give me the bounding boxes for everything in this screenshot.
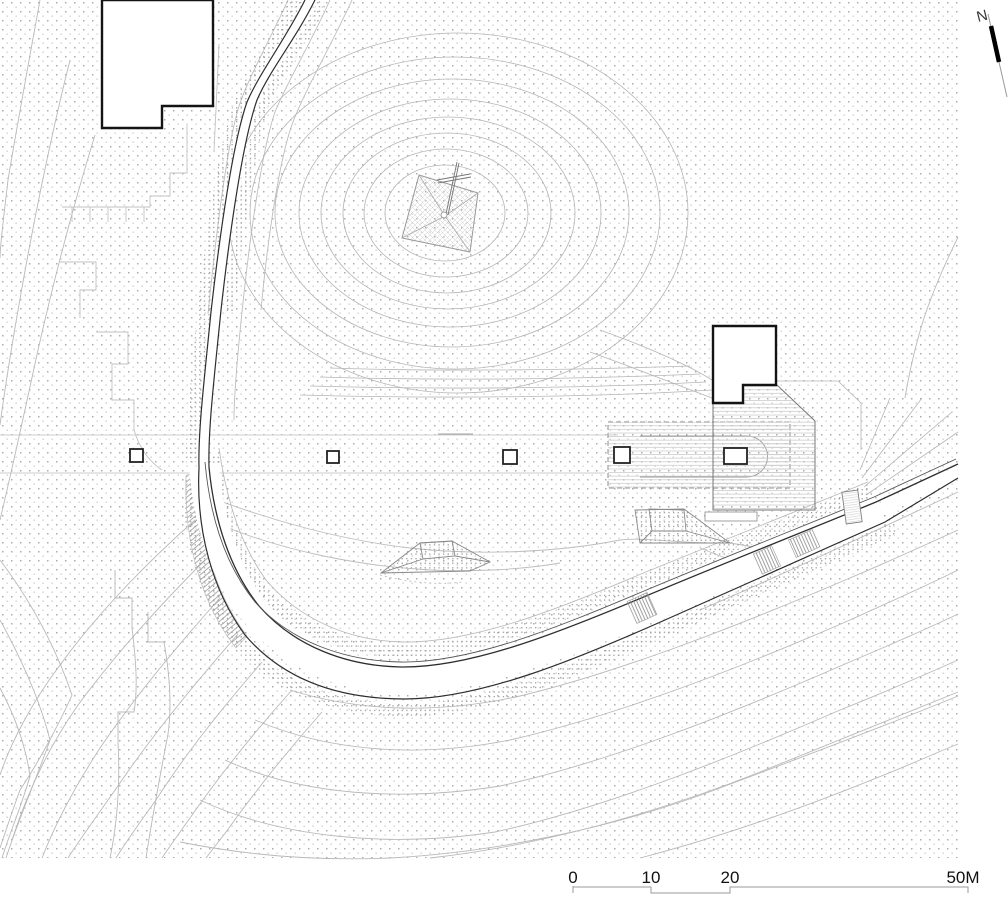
plinth-square [503, 450, 517, 464]
plinth-square [130, 449, 143, 462]
scale-label-0: 0 [568, 868, 577, 887]
monument-center-marker [441, 212, 447, 218]
platform-step-bar [705, 512, 757, 521]
site-plan-svg: N 0 10 20 50M [0, 0, 1008, 897]
north-arrow: N [975, 7, 1007, 97]
scale-bar: 0 10 20 50M [568, 868, 979, 893]
plinth-square [724, 448, 747, 464]
plinth-square [327, 451, 339, 463]
scale-label-10: 10 [642, 868, 661, 887]
north-label: N [975, 7, 990, 26]
site-plan: N 0 10 20 50M [0, 0, 1008, 897]
scale-bar-line [573, 886, 968, 893]
scale-label-20: 20 [721, 868, 740, 887]
plinth-square [614, 447, 630, 463]
scale-label-50m: 50M [946, 868, 979, 887]
